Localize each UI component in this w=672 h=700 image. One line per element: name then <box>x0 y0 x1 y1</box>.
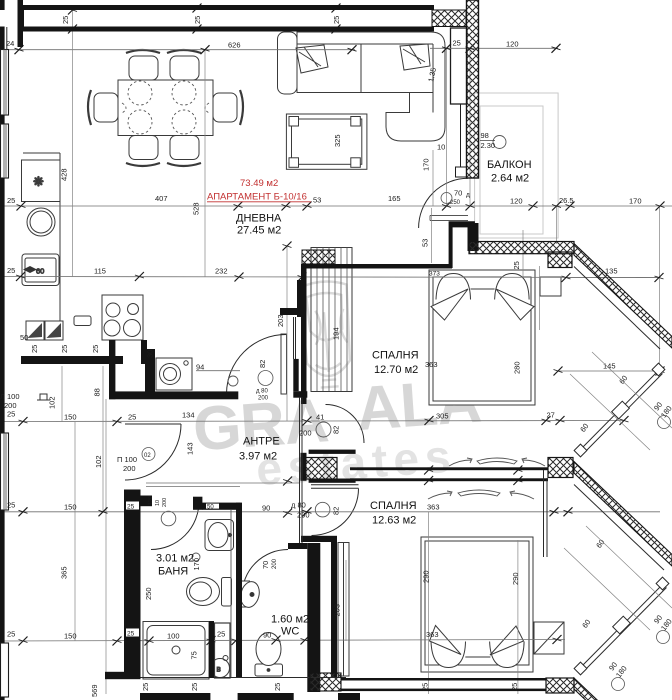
svg-text:12.63 м2: 12.63 м2 <box>372 515 416 527</box>
svg-text:143: 143 <box>186 442 195 455</box>
svg-text:25: 25 <box>217 630 225 639</box>
svg-text:25: 25 <box>453 39 461 48</box>
svg-text:25: 25 <box>332 16 341 24</box>
svg-text:25: 25 <box>60 345 69 353</box>
svg-text:363: 363 <box>426 630 439 639</box>
svg-text:82: 82 <box>258 360 267 368</box>
svg-text:53: 53 <box>313 196 321 205</box>
svg-text:200: 200 <box>4 401 17 410</box>
svg-text:25: 25 <box>61 16 70 24</box>
svg-text:365: 365 <box>60 566 69 579</box>
svg-text:280: 280 <box>513 361 522 374</box>
svg-text:25: 25 <box>30 345 39 353</box>
svg-text:363: 363 <box>427 503 440 512</box>
svg-text:ДНЕВНА: ДНЕВНА <box>236 213 282 225</box>
svg-text:д: д <box>466 192 470 199</box>
svg-text:70: 70 <box>454 189 462 198</box>
svg-text:98: 98 <box>481 131 489 140</box>
svg-text:194: 194 <box>332 327 341 340</box>
svg-text:24: 24 <box>6 39 14 48</box>
svg-text:2.64 м2: 2.64 м2 <box>491 173 529 185</box>
svg-text:428: 428 <box>60 168 69 181</box>
svg-text:90: 90 <box>262 504 270 513</box>
svg-text:528: 528 <box>192 202 201 215</box>
svg-text:407: 407 <box>155 194 168 203</box>
svg-text:2.30: 2.30 <box>481 141 496 150</box>
svg-text:94: 94 <box>196 363 204 372</box>
svg-text:134: 134 <box>182 411 195 420</box>
svg-text:СПАЛНЯ: СПАЛНЯ <box>370 500 417 512</box>
svg-text:12.70 м2: 12.70 м2 <box>374 364 418 376</box>
svg-text:25: 25 <box>7 630 15 639</box>
svg-text:Л 100: Л 100 <box>0 392 20 401</box>
svg-text:115: 115 <box>94 267 106 276</box>
svg-text:д 80: д 80 <box>291 501 306 510</box>
svg-text:25: 25 <box>273 683 282 691</box>
svg-text:3.97 м2: 3.97 м2 <box>239 451 277 463</box>
svg-text:25: 25 <box>141 683 150 691</box>
svg-text:БАНЯ: БАНЯ <box>158 566 188 578</box>
svg-text:30: 30 <box>146 350 155 358</box>
svg-text:П 100: П 100 <box>117 455 137 464</box>
svg-text:363: 363 <box>425 360 438 369</box>
svg-text:325: 325 <box>333 134 342 147</box>
svg-text:100: 100 <box>167 632 180 641</box>
svg-text:25: 25 <box>421 683 430 691</box>
svg-text:АНТРЕ: АНТРЕ <box>243 436 280 448</box>
svg-text:90: 90 <box>263 631 271 640</box>
svg-text:3.01 м2: 3.01 м2 <box>156 553 194 565</box>
svg-text:26.5: 26.5 <box>559 196 574 205</box>
svg-text:200: 200 <box>272 558 278 569</box>
svg-text:150: 150 <box>64 503 77 512</box>
svg-text:102: 102 <box>48 396 57 409</box>
svg-text:203: 203 <box>276 314 285 327</box>
svg-text:120: 120 <box>510 197 523 206</box>
svg-text:41: 41 <box>316 413 324 422</box>
svg-text:27: 27 <box>547 411 555 420</box>
svg-text:373: 373 <box>429 271 440 278</box>
svg-text:150: 150 <box>64 632 77 641</box>
svg-text:290: 290 <box>511 572 520 585</box>
svg-text:1.60 м2: 1.60 м2 <box>271 614 309 626</box>
svg-text:WC: WC <box>281 626 299 638</box>
svg-text:10: 10 <box>437 143 445 152</box>
svg-text:25: 25 <box>512 261 521 269</box>
svg-text:25: 25 <box>190 683 199 691</box>
svg-text:25: 25 <box>7 266 15 275</box>
svg-text:170: 170 <box>629 197 642 206</box>
svg-text:82: 82 <box>332 507 341 515</box>
svg-text:д 80: д 80 <box>256 389 269 395</box>
svg-text:50: 50 <box>207 505 214 511</box>
svg-text:25: 25 <box>193 16 202 24</box>
svg-text:27.45 м2: 27.45 м2 <box>237 225 281 237</box>
svg-text:25: 25 <box>128 413 136 422</box>
svg-text:25: 25 <box>7 501 15 510</box>
svg-text:25: 25 <box>91 345 100 353</box>
svg-text:250: 250 <box>144 587 153 600</box>
svg-text:569: 569 <box>90 684 99 697</box>
svg-text:120: 120 <box>506 40 519 49</box>
svg-text:СПАЛНЯ: СПАЛНЯ <box>372 350 419 362</box>
svg-text:❋: ❋ <box>33 174 44 189</box>
svg-text:25: 25 <box>127 504 135 511</box>
svg-text:02: 02 <box>144 453 151 459</box>
svg-text:25: 25 <box>510 683 519 691</box>
svg-text:25: 25 <box>7 196 15 205</box>
svg-text:170: 170 <box>422 158 431 171</box>
svg-text:82: 82 <box>332 426 341 434</box>
svg-text:БАЛКОН: БАЛКОН <box>487 159 532 171</box>
svg-text:200: 200 <box>299 429 312 438</box>
svg-text:53: 53 <box>421 239 430 247</box>
svg-text:200: 200 <box>297 511 310 520</box>
svg-text:135: 135 <box>605 267 618 276</box>
svg-text:70: 70 <box>261 561 270 569</box>
svg-text:203: 203 <box>333 604 342 617</box>
svg-text:60: 60 <box>36 267 44 276</box>
svg-text:626: 626 <box>228 41 241 50</box>
svg-text:88: 88 <box>93 388 102 396</box>
svg-text:в: в <box>217 665 221 674</box>
svg-text:232: 232 <box>215 267 228 276</box>
svg-text:200: 200 <box>123 464 136 473</box>
svg-text:305: 305 <box>436 412 449 421</box>
svg-text:25: 25 <box>7 410 15 419</box>
svg-text:120: 120 <box>148 496 154 505</box>
svg-text:290: 290 <box>422 570 431 583</box>
svg-text:75: 75 <box>190 651 199 659</box>
svg-text:102: 102 <box>94 455 103 468</box>
svg-text:145: 145 <box>603 362 616 371</box>
svg-text:150: 150 <box>64 413 77 422</box>
svg-text:73.49 м2: 73.49 м2 <box>240 178 278 189</box>
svg-text:10: 10 <box>155 500 161 506</box>
svg-text:25: 25 <box>127 631 135 638</box>
svg-text:200: 200 <box>162 498 168 507</box>
svg-text:170: 170 <box>192 558 201 571</box>
svg-text:165: 165 <box>388 194 401 203</box>
svg-text:АПАРТАМЕНТ Б-10/16: АПАРТАМЕНТ Б-10/16 <box>207 192 307 203</box>
svg-text:200: 200 <box>258 396 269 402</box>
svg-text:50: 50 <box>20 333 28 342</box>
